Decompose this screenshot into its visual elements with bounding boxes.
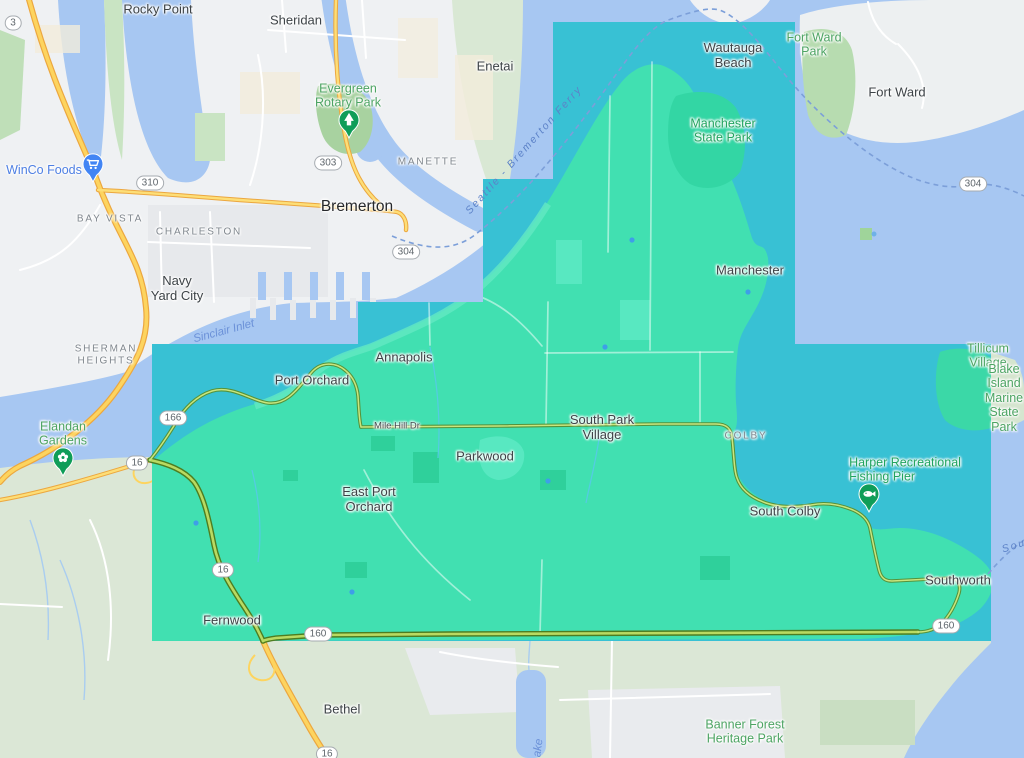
map-canvas[interactable] bbox=[0, 0, 1024, 758]
route-shield-304: 304 bbox=[392, 245, 420, 260]
elandan-gardens-pin[interactable] bbox=[52, 447, 74, 477]
route-shield-303: 303 bbox=[314, 156, 342, 171]
route-shield-310: 310 bbox=[136, 176, 164, 191]
route-shield-16: 16 bbox=[212, 563, 234, 578]
route-shield-16: 16 bbox=[126, 456, 148, 471]
evergreen-rotary-park-pin[interactable] bbox=[338, 109, 360, 139]
route-shield-160: 160 bbox=[304, 627, 332, 642]
route-shield-16: 16 bbox=[316, 747, 338, 758]
harper-pier-pin[interactable] bbox=[858, 483, 880, 513]
route-shield-160: 160 bbox=[932, 619, 960, 634]
winco-foods-pin[interactable] bbox=[82, 153, 104, 183]
route-shield-304: 304 bbox=[959, 177, 987, 192]
route-shield-166: 166 bbox=[159, 411, 187, 426]
route-shield-3: 3 bbox=[5, 16, 22, 31]
map-viewport[interactable]: Rocky PointSheridanEnetaiFort WardWautau… bbox=[0, 0, 1024, 758]
